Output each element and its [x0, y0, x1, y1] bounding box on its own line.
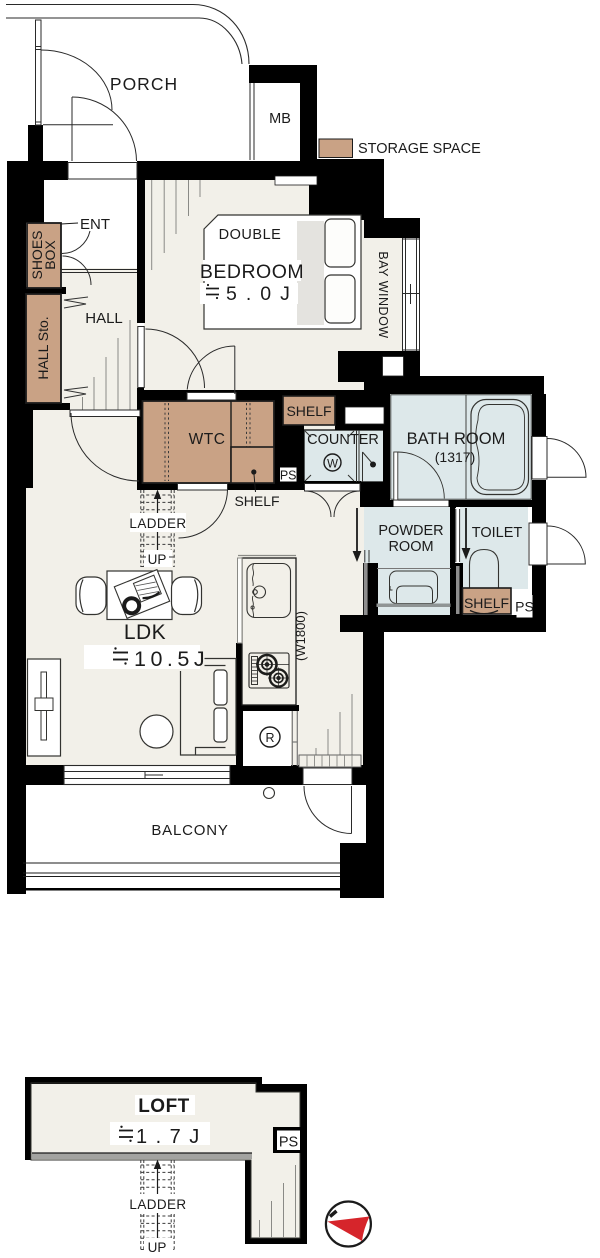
svg-text:HALL Sto.: HALL Sto. — [35, 316, 51, 379]
svg-text:UP: UP — [148, 552, 167, 567]
svg-text:SHELF: SHELF — [464, 595, 509, 611]
svg-text:BALCONY: BALCONY — [151, 822, 228, 839]
svg-text:DOUBLE: DOUBLE — [219, 227, 282, 243]
svg-text:BATH ROOM: BATH ROOM — [407, 430, 506, 448]
svg-text:W: W — [327, 459, 338, 471]
svg-text:POWDER: POWDER — [378, 523, 443, 539]
svg-text:LDK: LDK — [124, 621, 166, 644]
svg-text:SHELF: SHELF — [234, 493, 279, 509]
svg-text:1.7J: 1.7J — [136, 1126, 208, 1148]
svg-text:MB: MB — [269, 111, 291, 127]
svg-text:R: R — [265, 731, 274, 745]
svg-text:SHELF: SHELF — [286, 403, 331, 419]
svg-text:UP: UP — [148, 1240, 167, 1255]
svg-text:LOFT: LOFT — [138, 1096, 190, 1117]
svg-text:COUNTER: COUNTER — [307, 432, 379, 448]
svg-text:PS: PS — [280, 469, 297, 483]
svg-text:BEDROOM: BEDROOM — [200, 261, 304, 283]
svg-text:LADDER: LADDER — [129, 516, 186, 531]
svg-text:PS: PS — [515, 599, 534, 615]
svg-text:(W1800): (W1800) — [293, 611, 308, 661]
svg-text:WTC: WTC — [189, 431, 226, 448]
svg-text:ENT: ENT — [80, 216, 110, 233]
svg-text:PS: PS — [279, 1135, 298, 1151]
svg-text:HALL: HALL — [85, 310, 123, 327]
svg-text:5.0J: 5.0J — [226, 283, 299, 305]
svg-text:10.5J: 10.5J — [134, 647, 209, 671]
svg-text:ROOM: ROOM — [388, 539, 433, 555]
svg-text:STORAGE SPACE: STORAGE SPACE — [358, 141, 481, 157]
svg-text:LADDER: LADDER — [129, 1197, 186, 1212]
svg-text:BAY WINDOW: BAY WINDOW — [376, 251, 390, 338]
svg-text:TOILET: TOILET — [472, 525, 523, 541]
svg-text:(1317): (1317) — [435, 449, 475, 465]
svg-text:PORCH: PORCH — [110, 74, 178, 94]
